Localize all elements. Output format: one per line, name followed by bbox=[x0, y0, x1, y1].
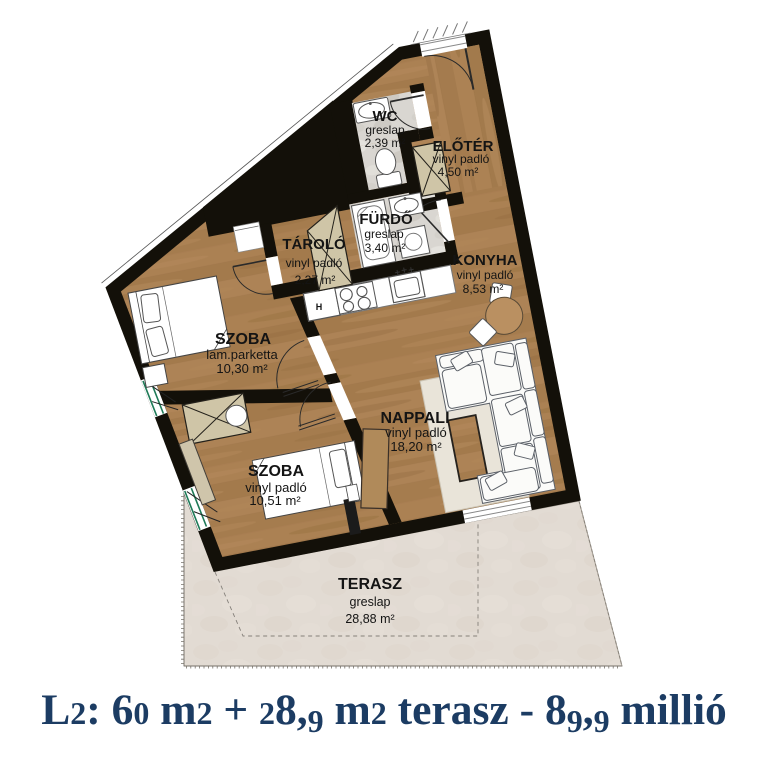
svg-text:2,39 m²: 2,39 m² bbox=[365, 136, 406, 150]
svg-text:28,88 m²: 28,88 m² bbox=[345, 612, 394, 626]
svg-text:greslap: greslap bbox=[365, 123, 405, 137]
svg-text:8,53 m²: 8,53 m² bbox=[463, 282, 504, 296]
svg-text:10,30 m²: 10,30 m² bbox=[216, 361, 268, 376]
svg-text:SZOBA: SZOBA bbox=[248, 463, 304, 480]
svg-text:3,40 m²: 3,40 m² bbox=[365, 241, 406, 255]
svg-text:H: H bbox=[316, 302, 323, 312]
svg-text:vinyl padló: vinyl padló bbox=[433, 152, 490, 166]
svg-text:18,20 m²: 18,20 m² bbox=[390, 439, 442, 454]
svg-text:vinyl padló: vinyl padló bbox=[286, 256, 343, 270]
svg-text:lam.parketta: lam.parketta bbox=[206, 347, 278, 362]
svg-text:SZOBA: SZOBA bbox=[215, 331, 271, 348]
svg-text:10,51 m²: 10,51 m² bbox=[249, 493, 301, 508]
svg-text:L2: 60 m2 + 28,9 m2 terasz - 8: L2: 60 m2 + 28,9 m2 terasz - 89,9 millió bbox=[41, 686, 727, 739]
svg-text:vinyl padló: vinyl padló bbox=[385, 425, 446, 440]
svg-text:greslap: greslap bbox=[350, 595, 391, 609]
svg-text:KONYHA: KONYHA bbox=[452, 252, 517, 269]
svg-text:TERASZ: TERASZ bbox=[338, 576, 402, 593]
svg-text:vinyl padló: vinyl padló bbox=[457, 268, 514, 282]
svg-text:2,27 m²: 2,27 m² bbox=[295, 273, 336, 287]
svg-text:4,50 m²: 4,50 m² bbox=[438, 165, 479, 179]
svg-text:FÜRDŐ: FÜRDŐ bbox=[359, 210, 413, 228]
svg-text:greslap: greslap bbox=[364, 227, 404, 241]
svg-text:TÁROLÓ: TÁROLÓ bbox=[282, 235, 346, 253]
